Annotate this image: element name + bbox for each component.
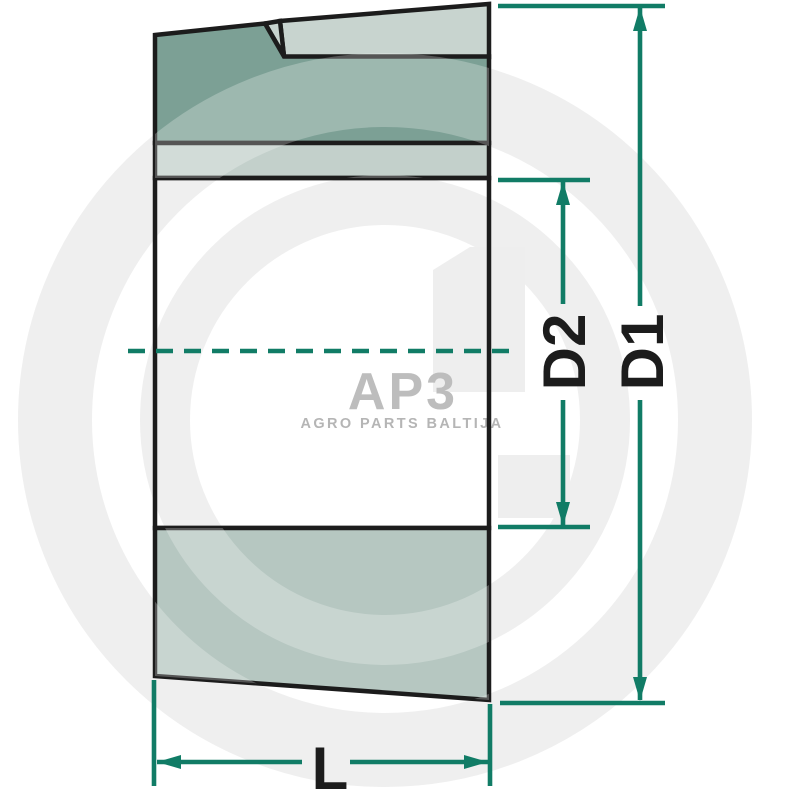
d2-label: D2 (531, 314, 598, 391)
d1-label: D1 (609, 314, 676, 391)
length-arrow-left-icon (157, 755, 181, 769)
brand-logo-text: AP3 (348, 363, 458, 421)
product-drawing-canvas: AP3 AGRO PARTS BALTIJA D1 (0, 0, 800, 800)
d1-arrow-down-icon (633, 677, 647, 701)
length-label: L (312, 735, 349, 800)
part-top-recess-region (280, 4, 489, 57)
technical-drawing: AP3 AGRO PARTS BALTIJA D1 (0, 0, 800, 800)
d1-arrow-up-icon (633, 7, 647, 31)
brand-tagline-text: AGRO PARTS BALTIJA (301, 416, 504, 432)
